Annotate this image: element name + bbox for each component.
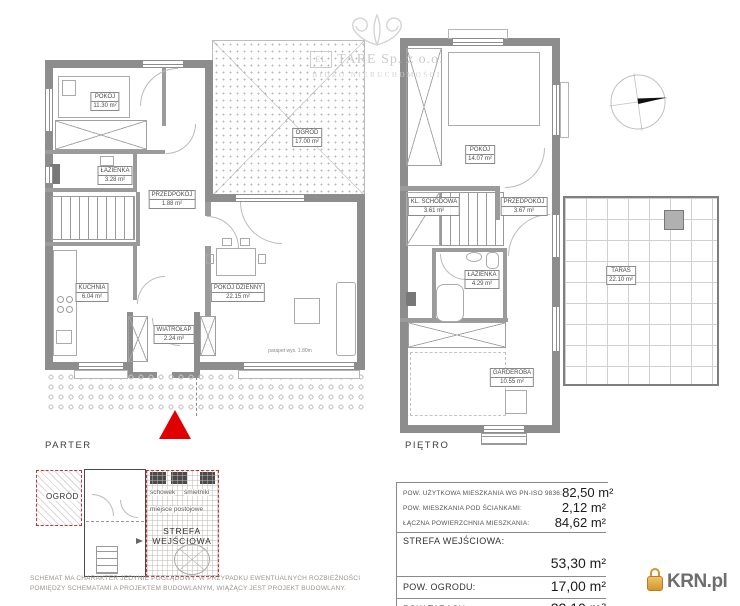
row-label: POW. UŻYTKOWA MIESZKANIA WG PN-ISO 9836: <box>403 490 562 500</box>
entrance-zone-value: 53,30 m² <box>403 546 606 574</box>
room-tag-lazienka: ŁAZIENKA 4.29 m² <box>464 270 499 289</box>
row-label: POW.TARASU: <box>403 600 468 606</box>
room-label: ŁAZIENKA <box>465 271 498 280</box>
room-tag-przedpokoj: PRZEDPOKÓJ 1.88 m² <box>149 190 196 209</box>
row-value: 84,62 m² <box>555 515 606 530</box>
room-area: 11.30 m² <box>91 102 118 110</box>
room-label: WIATROŁAP <box>155 326 194 335</box>
terrace-door <box>552 214 560 258</box>
coffee-table <box>294 298 320 324</box>
room-label: KUCHNIA <box>76 284 107 293</box>
terrace-area <box>563 196 719 386</box>
padlock-body <box>647 576 663 591</box>
dining-table <box>216 248 256 276</box>
partition-wall <box>503 248 507 322</box>
chair <box>240 238 250 246</box>
wall <box>45 60 213 68</box>
room-label: TARAS <box>607 267 635 276</box>
room-area: 10.55 m² <box>491 378 533 386</box>
room-tag-przedpokoj: PRZEDPOKÓJ 3.67 m² <box>501 197 548 216</box>
furniture-wardrobe <box>406 48 442 166</box>
padlock-icon <box>646 567 666 594</box>
room-tag-wiatrolap: WIATROŁAP 2.24 m² <box>154 325 195 344</box>
balcony-door <box>483 425 525 433</box>
room-tag-kl-schodowa: KL. SCHODOWA 3.61 m² <box>408 197 460 216</box>
site-entrance-zone <box>146 470 219 577</box>
site-dashed-line <box>86 521 144 522</box>
furniture-cabinet <box>200 316 216 356</box>
room-area: 22.10 m² <box>607 276 635 284</box>
site-entrance-line2: WEJŚCIOWA <box>147 536 217 546</box>
site-bins-label: śmietniki <box>184 489 209 496</box>
floor-plan-sheet: EL TARE Sp. z o.o. BIURO NIERUCHOMOŚCI O… <box>0 0 740 606</box>
room-tag-lazienka: ŁAZIENKA 3.28 m² <box>97 166 132 185</box>
wall <box>205 60 213 202</box>
entrance-zone-label: STREFA WEJŚCIOWA: <box>403 533 606 546</box>
room-area: 4.29 m² <box>465 280 498 288</box>
room-area: 3.67 m² <box>502 207 547 215</box>
partition-wall <box>205 202 211 216</box>
furniture-cabinet <box>128 316 148 362</box>
room-tag-taras: TARAS 22.10 m² <box>606 266 636 285</box>
room-area: 17.00 m² <box>293 138 321 146</box>
room-label: POKÓJ DZIENNY <box>212 284 264 293</box>
window-sill <box>560 82 569 138</box>
room-label: POKÓJ <box>466 146 494 155</box>
disclaimer-line2: POMIĘDZY SCHEMATAMI A PROJEKTEM BUDOWLAN… <box>30 584 430 594</box>
site-storage-label: schowek <box>150 489 175 496</box>
table-row: POW. UŻYTKOWA MIESZKANIA WG PN-ISO 9836:… <box>403 485 606 500</box>
duct-shaft <box>406 292 416 306</box>
partition-wall <box>400 186 498 191</box>
krn-logo-text: KRN.pl <box>667 569 727 594</box>
room-tag-garderoba: GARDEROBA 10.55 m² <box>490 368 534 387</box>
room-area: 3.28 m² <box>98 176 131 184</box>
door-arc <box>440 254 466 280</box>
door-arc <box>207 216 239 248</box>
chair <box>206 254 214 264</box>
site-entrance-label: STREFA WEJŚCIOWA <box>147 526 217 546</box>
window <box>235 194 305 202</box>
room-tag-pokoj-dzienny: POKÓJ DZIENNY 22.15 m² <box>211 283 265 302</box>
door-arc <box>508 214 550 256</box>
room-area: 2.24 m² <box>155 335 194 343</box>
window <box>78 362 124 370</box>
site-entrance-line1: STREFA <box>147 526 217 536</box>
window <box>243 362 355 370</box>
partition-wall <box>45 242 140 246</box>
site-garden-label: OGRÓD <box>44 492 81 501</box>
row-label: ŁĄCZNA POWIERZCHNIA MIESZKANIA: <box>403 520 529 530</box>
room-area: 22.15 m² <box>212 293 264 301</box>
bathtub <box>436 284 464 322</box>
boundary-dashed-line <box>196 372 197 416</box>
row-label: POW. MIESZKANIA POD ŚCIANKAMI: <box>403 505 522 515</box>
site-staircase <box>96 546 118 574</box>
floor-label-parter: PARTER <box>45 440 92 451</box>
furniture-wardrobe <box>408 322 506 348</box>
table-row: POW.TARASU: 22,10 m² <box>403 599 606 606</box>
parapet-note: parapet wys. 1.80m <box>268 348 312 354</box>
window-sill <box>238 370 360 379</box>
window-sill <box>74 370 128 379</box>
row-value: 17,00 m² <box>551 578 606 594</box>
krn-logo[interactable]: KRN.pl <box>646 567 727 594</box>
window <box>552 84 560 136</box>
partition-wall <box>45 188 137 192</box>
table-row: POW. OGRODU: 17,00 m² <box>403 577 606 596</box>
door-arc <box>137 276 165 304</box>
row-value: 2,12 m² <box>562 500 606 515</box>
table-row: ŁĄCZNA POWIERZCHNIA MIESZKANIA: 84,62 m² <box>403 515 606 530</box>
table-row: POW. MIESZKANIA POD ŚCIANKAMI: 2,12 m² <box>403 500 606 515</box>
toilet <box>486 252 499 269</box>
room-label: PRZEDPOKÓJ <box>502 198 547 207</box>
exterior-steps <box>481 433 527 445</box>
hob-burner-icon <box>66 306 73 313</box>
furniture-bed <box>448 52 540 126</box>
room-label: ŁAZIENKA <box>98 167 131 176</box>
window <box>45 88 53 132</box>
window <box>45 166 53 184</box>
window <box>452 38 504 46</box>
staircase <box>51 196 135 240</box>
kitchen-sink <box>56 330 72 344</box>
room-tag-kuchnia: KUCHNIA 6.04 m² <box>75 283 108 302</box>
partition-wall <box>133 150 137 192</box>
row-label: POW. OGRODU: <box>403 578 476 594</box>
hob-burner-icon <box>57 296 64 303</box>
room-label: PRZEDPOKÓJ <box>150 191 195 200</box>
bathroom-sink <box>466 252 482 262</box>
chimney <box>664 210 684 230</box>
furniture-wardrobe <box>55 120 147 150</box>
room-area: 14.07 m² <box>466 155 494 163</box>
room-tag-pokoj: POKÓJ 14.07 m² <box>465 145 495 164</box>
room-area: 6.04 m² <box>76 293 107 301</box>
floor-label-pietro: PIĘTRO <box>405 440 449 451</box>
room-label: GARDEROBA <box>491 369 533 378</box>
door-arc <box>140 68 178 106</box>
door-arc <box>166 124 196 154</box>
disclaimer: SCHEMAT MA CHARAKTER JEDYNIE POGLĄDOWY. … <box>30 574 430 593</box>
furniture-pillow <box>62 80 76 96</box>
hob-burner-icon <box>66 296 73 303</box>
room-tag-pokoj: POKÓJ 11.30 m² <box>90 92 119 111</box>
disclaimer-line1: SCHEMAT MA CHARAKTER JEDYNIE POGLĄDOWY. … <box>30 574 430 584</box>
chair <box>258 254 266 264</box>
hob-burner-icon <box>57 306 64 313</box>
wall <box>400 425 560 433</box>
room-label: POKÓJ <box>91 93 118 102</box>
bathroom-sink <box>100 156 114 166</box>
room-label: KL. SCHODOWA <box>409 198 459 207</box>
partition-wall <box>136 192 140 246</box>
area-table: POW. UŻYTKOWA MIESZKANIA WG PN-ISO 9836:… <box>396 482 608 606</box>
row-value: 22,10 m² <box>551 600 606 606</box>
garden-cross-lines <box>213 41 364 195</box>
entrance-arrow-icon <box>136 538 143 544</box>
room-area: 3.61 m² <box>409 207 459 215</box>
window <box>552 306 560 352</box>
row-value: 82,50 m² <box>562 485 613 500</box>
partition-wall <box>133 246 137 300</box>
room-area: 1.88 m² <box>150 200 195 208</box>
wall <box>357 194 365 370</box>
partition-wall <box>45 150 165 154</box>
room-label: OGRÓD <box>293 129 321 138</box>
window <box>142 60 184 68</box>
door-arc <box>505 148 545 188</box>
compass-icon <box>604 68 672 136</box>
garden-area <box>212 40 365 196</box>
entrance-marker <box>159 410 191 439</box>
sofa <box>336 282 356 356</box>
room-tag-ogrod: OGRÓD 17.00 m² <box>292 128 322 147</box>
site-parking-label: miejsce postojowe <box>150 506 203 513</box>
furniture-cabinet <box>505 390 527 414</box>
